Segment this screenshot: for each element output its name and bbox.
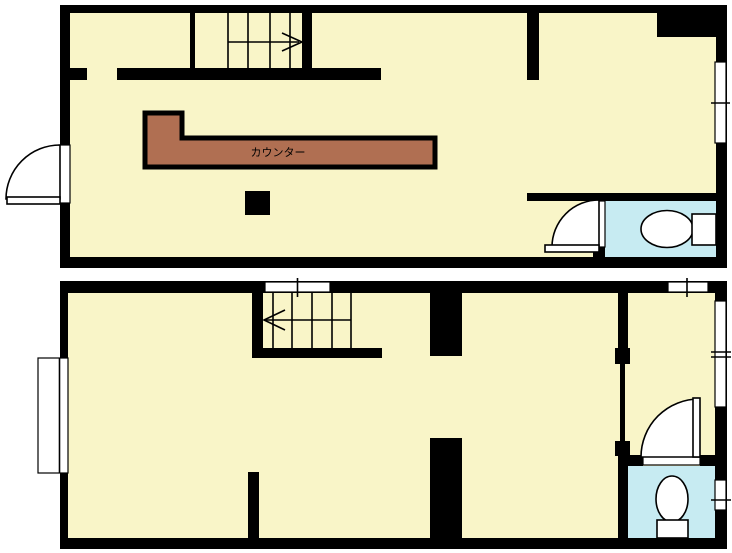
floor1-toilet-top-wall [527,193,716,201]
partition-jamb [615,348,630,364]
toilet-bowl-icon [641,211,693,248]
door-leaf [545,245,599,252]
door-swing-arc [6,145,60,199]
floor1-stair-wall-left [190,13,195,68]
floor-plan-drawing: カウンター [0,0,732,553]
partition-lower [618,456,628,538]
floor2-stair-wall-bottom [252,348,382,358]
floor1-wall-left [60,5,70,268]
floor-plan-canvas: カウンター [0,0,732,553]
door-leaf [7,197,60,204]
window-glass [715,301,726,407]
floor2-stair-wall-left [252,293,263,348]
floor1-wall-top [60,5,727,13]
floor1-entrance-door [6,145,70,204]
floor2-column-bottom [430,438,462,538]
floor2-divider-wall [248,472,259,538]
floor1-pillar [245,191,270,215]
partition-thin [620,363,625,441]
floor1-wall-horizontal [117,68,381,80]
floor1-plan: カウンター [6,5,730,268]
floor2-plan [38,278,731,549]
floor2-column-top [430,281,462,356]
window-glass [715,480,726,510]
partition-jamb [615,441,630,456]
floor1-wall-vertical [527,13,539,80]
floor1-toilet-fixture [641,211,716,248]
window-glass [38,358,68,473]
floor2-toilet-wall-left [618,455,643,466]
floor1-corner-block [657,13,727,37]
toilet-tank-icon [692,214,716,245]
floor2-wall-bottom [60,538,727,549]
toilet-bowl-icon [656,476,688,522]
door-leaf [693,398,700,457]
floor2-toilet-wall-right [700,455,715,466]
window-glass [668,282,708,292]
floor2-toilet-fixture [656,476,688,538]
counter-label: カウンター [251,146,306,159]
floor1-wall-bottom [60,257,727,268]
floor2-window-left [38,358,68,473]
toilet-tank-icon [657,520,688,538]
floor1-wall-stub-left [60,68,87,80]
